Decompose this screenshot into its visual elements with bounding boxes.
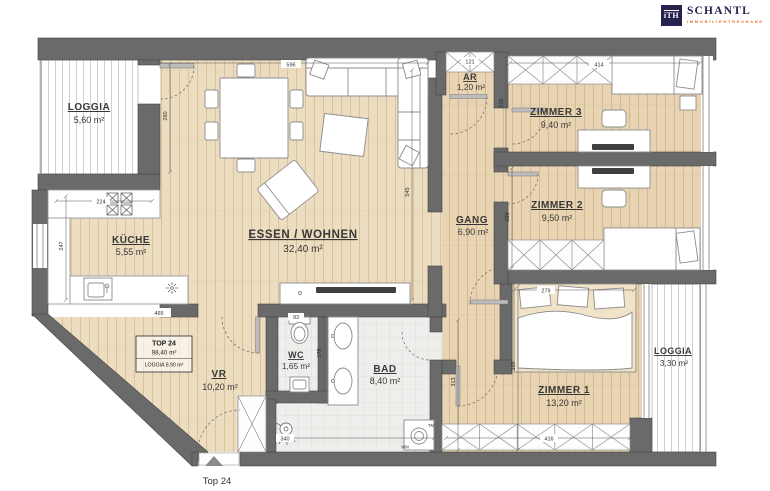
sideboard	[280, 283, 410, 304]
label-essen-wohnen-name: ESSEN / WOHNEN	[248, 229, 357, 241]
label-gang-name: GANG	[456, 215, 488, 226]
agency-logo: iTH SCHANTL IMMOBILIENTREUHAND	[661, 5, 764, 26]
label-kueche-area: 5,55 m²	[116, 247, 147, 257]
label-zimmer1-area: 13,20 m²	[546, 398, 582, 408]
label-wc-name: WC	[288, 350, 304, 360]
dim-226: 226	[499, 98, 505, 107]
label-loggia-tl-name: LOGGIA	[68, 102, 110, 113]
dim-416: 416	[544, 437, 553, 443]
nightstand-zimmer3	[680, 96, 696, 110]
label-zimmer2-name: ZIMMER 2	[531, 200, 583, 211]
tv-device	[316, 287, 396, 293]
door-leaf-loggia	[160, 64, 194, 69]
bed-zimmer2-pillow	[676, 231, 698, 263]
vanity-sink	[334, 323, 352, 349]
dim-179: 179	[317, 348, 323, 357]
wall-corridor-south-a	[442, 360, 456, 374]
wall-corridor-south-b	[494, 360, 512, 374]
zimmer1-furniture	[514, 284, 636, 372]
label-loggia-br-area: 3,30 m²	[660, 358, 688, 368]
wall-wc-left	[266, 317, 278, 403]
floor-plan-svg: 596 414 121 545 260 226 229 224 247 465 …	[0, 0, 770, 491]
label-zimmer2-area: 9,50 m²	[542, 213, 573, 223]
door-leaf-ar	[450, 95, 487, 99]
wall-loggia-column	[138, 104, 160, 174]
label-loggia-tl-area: 5,60 m²	[74, 115, 105, 125]
logo-ith-icon: iTH	[661, 5, 682, 26]
coffee-table	[320, 113, 368, 156]
door-leaf-gang	[470, 300, 508, 304]
vanity-tap	[332, 380, 335, 383]
dim-465: 465	[154, 311, 163, 317]
label-vr-name: VR	[212, 369, 227, 380]
toilet-bowl-inner	[294, 327, 305, 341]
dining-chair	[237, 159, 255, 172]
wall-loggia-jamb	[138, 60, 160, 65]
dim-313: 313	[451, 377, 457, 386]
label-zimmer3-name: ZIMMER 3	[530, 107, 582, 118]
label-vr-area: 10,20 m²	[202, 382, 238, 392]
loggia-bottom-right-floor	[652, 284, 700, 452]
counter-left	[48, 218, 70, 304]
dining-chair	[290, 90, 303, 108]
label-dryer-tm: TM	[428, 423, 435, 428]
unit-info-box: TOP 24 98,40 m² LOGGIA 8,90 m²	[136, 336, 192, 372]
bed-zimmer1-duvet	[518, 311, 632, 370]
label-ar-name: AR	[463, 72, 477, 82]
dim-596: 596	[286, 63, 295, 69]
dim-279: 279	[541, 289, 550, 295]
zimmer1-window-glass	[642, 284, 651, 418]
bed-zimmer3-pillow	[676, 59, 698, 89]
wall-living-gang-lower	[428, 266, 442, 317]
living-gang-passage-floor	[428, 212, 442, 266]
dining-table	[220, 78, 288, 158]
label-zimmer3-area: 9,40 m²	[541, 120, 572, 130]
wall-loggia-corner	[630, 418, 652, 452]
dim-93: 93	[293, 315, 299, 321]
label-ar-area: 1,20 m²	[457, 82, 485, 92]
floor-plan-page: 596 414 121 545 260 226 229 224 247 465 …	[0, 0, 770, 491]
label-bad-name: BAD	[373, 364, 396, 375]
sideboard-knob	[299, 292, 302, 295]
logo-subtitle: IMMOBILIENTREUHAND	[687, 19, 764, 24]
entrance-label: Top 24	[203, 476, 232, 487]
dim-121: 121	[465, 60, 474, 66]
wall-bottom-left	[192, 452, 198, 466]
door-leaf-vr	[256, 317, 260, 353]
monitor-zimmer2	[592, 168, 634, 174]
dim-388: 388	[511, 361, 517, 370]
kitchen-sink	[84, 278, 112, 300]
wall-living-south-b	[258, 304, 446, 317]
wc-sink-basin	[293, 380, 306, 389]
desk-chair-zimmer2	[602, 190, 626, 207]
logo-name: SCHANTL	[687, 5, 764, 17]
desk-chair-zimmer3	[602, 110, 626, 127]
wall-z2-south	[508, 270, 716, 284]
bad-door-floor	[430, 332, 442, 360]
shower-head-center	[284, 427, 288, 431]
dim-224: 224	[96, 200, 105, 206]
label-zimmer1-name: ZIMMER 1	[538, 385, 590, 396]
dim-340: 340	[280, 437, 289, 443]
door-leaf-zimmer2	[508, 172, 538, 176]
label-loggia-br-name: LOGGIA	[654, 346, 692, 356]
info-box-loggia: LOGGIA 8,90 m²	[145, 363, 184, 369]
wall-ar-left	[436, 52, 446, 95]
zimmer2-door-floor	[494, 170, 508, 204]
dim-260: 260	[163, 111, 169, 120]
wall-corridor-east	[500, 284, 512, 362]
vr-living-opening-floor	[198, 304, 258, 317]
vanity-sink	[334, 368, 352, 394]
label-washing-machine-wm: WM	[401, 445, 409, 450]
label-wc-area: 1,65 m²	[282, 361, 310, 371]
kitchen-window-glass	[33, 224, 47, 268]
dining-chair	[205, 122, 218, 140]
bed-zimmer1-pillow	[557, 286, 589, 308]
label-essen-wohnen-area: 32,40 m²	[283, 244, 323, 255]
dim-229: 229	[505, 212, 511, 221]
info-box-area: 98,40 m²	[152, 350, 177, 357]
label-bad-area: 8,40 m²	[370, 376, 401, 386]
dim-545: 545	[405, 187, 411, 196]
logo-text-block: SCHANTL IMMOBILIENTREUHAND	[687, 5, 764, 24]
wall-bottom	[240, 452, 716, 466]
zimmer1-door-floor	[456, 360, 494, 374]
dining-chair	[205, 90, 218, 108]
dim-247: 247	[59, 241, 65, 250]
label-gang-area: 6,90 m²	[458, 227, 489, 237]
wall-living-gang-upper	[428, 78, 442, 212]
dining-chair	[237, 64, 255, 77]
wall-loggia-south	[38, 174, 160, 190]
dim-414: 414	[594, 63, 603, 69]
dining-chair	[290, 122, 303, 140]
bed-zimmer1-pillow	[593, 288, 624, 309]
vanity-tap	[332, 335, 335, 338]
washing-machine-drum-inner	[415, 432, 424, 441]
sink-basin	[88, 283, 104, 297]
light-center	[171, 287, 174, 290]
dining-table-set	[205, 64, 303, 172]
monitor-zimmer3	[592, 144, 634, 150]
info-box-title: TOP 24	[152, 341, 176, 348]
label-kueche-name: KÜCHE	[112, 233, 150, 246]
wall-z3-z2	[494, 152, 716, 166]
wall-bad-east-a	[430, 317, 442, 332]
